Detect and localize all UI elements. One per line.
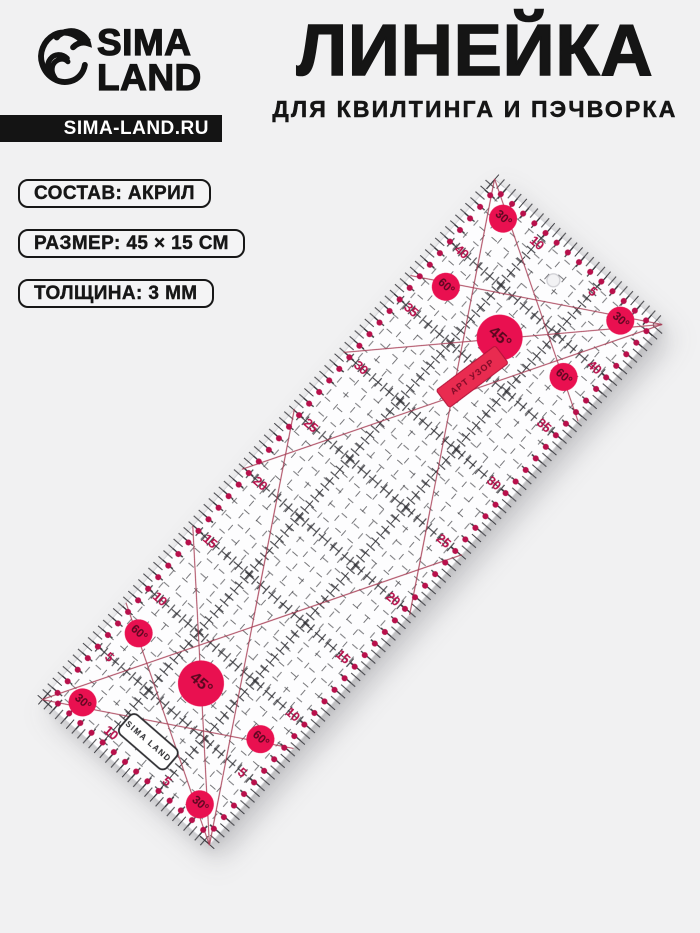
spec-list: СОСТАВ: АКРИЛ РАЗМЕР: 45 × 15 СМ ТОЛЩИНА… (18, 179, 245, 308)
logo-wordmark: SIMA LAND (97, 22, 202, 95)
product-title: ЛИНЕЙКА (250, 14, 700, 89)
site-url-text: SIMA-LAND.RU (64, 118, 209, 139)
logo-line-1: SIMA (97, 25, 202, 60)
site-url-bar: SIMA-LAND.RU (0, 115, 222, 142)
logo-line-2: LAND (97, 60, 202, 95)
product-subtitle: ДЛЯ КВИЛТИНГА И ПЭЧВОРКА (250, 96, 700, 123)
spec-size: РАЗМЕР: 45 × 15 СМ (18, 229, 245, 258)
title-block: ЛИНЕЙКА ДЛЯ КВИЛТИНГА И ПЭЧВОРКА (250, 14, 700, 123)
product-card: { "page": { "background": "#f1f1f2" }, "… (0, 0, 700, 933)
sima-land-logo: SIMA LAND (26, 22, 202, 100)
spec-material: СОСТАВ: АКРИЛ (18, 179, 211, 208)
sima-land-bird-icon (26, 22, 94, 100)
spec-thickness: ТОЛЩИНА: 3 ММ (18, 279, 214, 308)
